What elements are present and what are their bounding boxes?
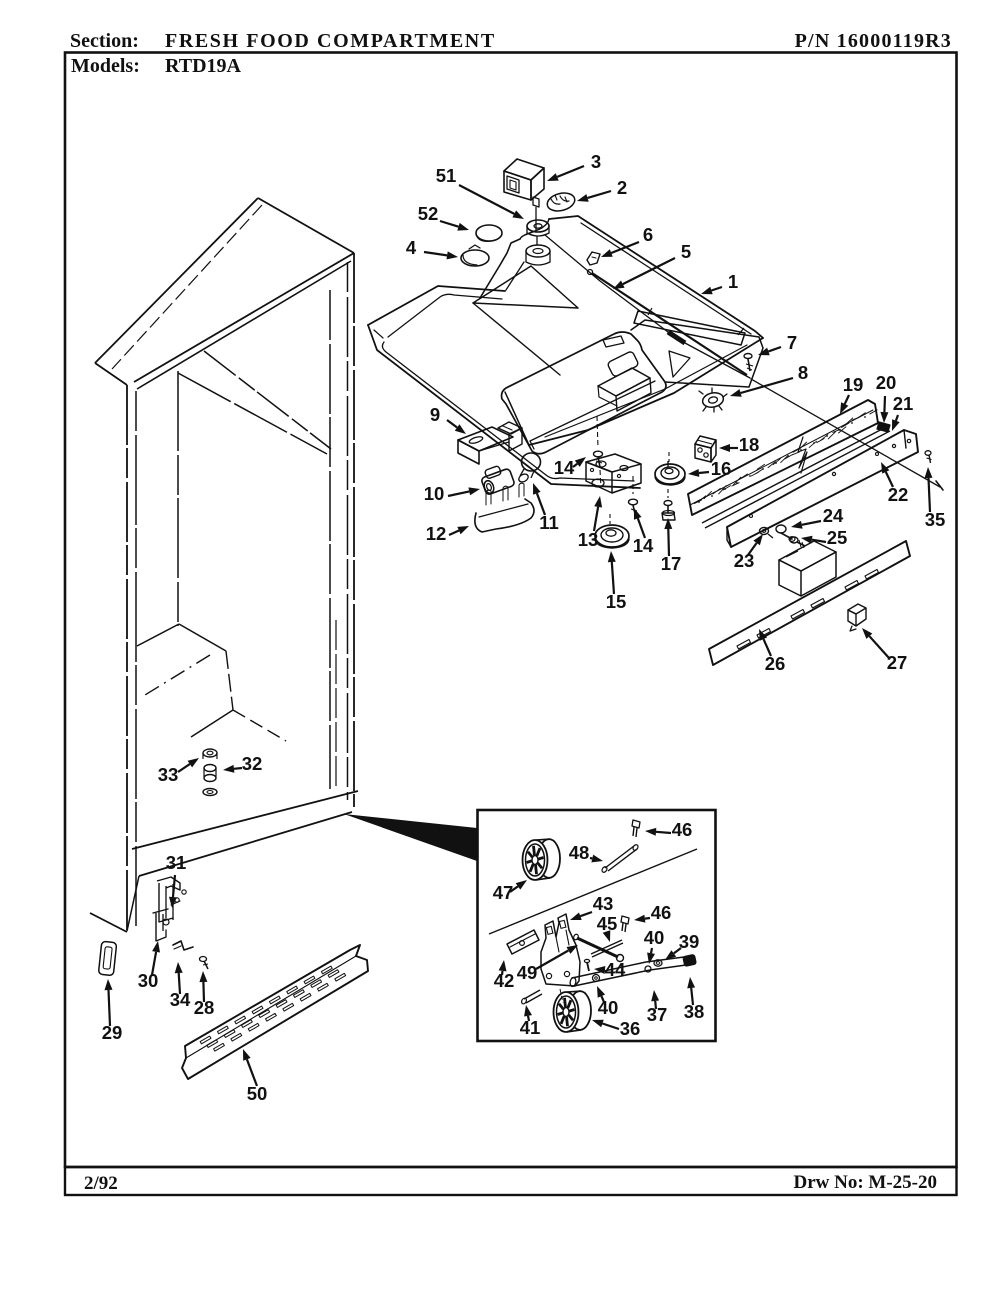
- svg-text:25: 25: [827, 527, 848, 548]
- svg-text:4: 4: [406, 237, 417, 258]
- svg-text:14: 14: [633, 535, 654, 556]
- svg-text:8: 8: [798, 362, 808, 383]
- svg-text:13: 13: [578, 529, 599, 550]
- svg-text:43: 43: [593, 893, 614, 914]
- svg-text:46: 46: [651, 902, 672, 923]
- svg-text:10: 10: [424, 483, 445, 504]
- svg-text:39: 39: [679, 931, 700, 952]
- svg-text:27: 27: [887, 652, 908, 673]
- svg-text:29: 29: [102, 1022, 123, 1043]
- svg-text:5: 5: [681, 241, 691, 262]
- svg-text:52: 52: [418, 203, 439, 224]
- svg-text:31: 31: [166, 852, 187, 873]
- svg-text:37: 37: [647, 1004, 668, 1025]
- svg-text:49: 49: [517, 962, 538, 983]
- svg-text:22: 22: [888, 484, 909, 505]
- svg-text:47: 47: [493, 882, 514, 903]
- svg-text:35: 35: [925, 509, 946, 530]
- svg-text:48: 48: [569, 842, 590, 863]
- svg-text:21: 21: [893, 393, 914, 414]
- svg-text:46: 46: [672, 819, 693, 840]
- svg-text:44: 44: [605, 959, 626, 980]
- svg-text:23: 23: [734, 550, 755, 571]
- svg-text:19: 19: [843, 374, 864, 395]
- svg-text:32: 32: [242, 753, 263, 774]
- svg-text:12: 12: [426, 523, 447, 544]
- svg-text:3: 3: [591, 151, 601, 172]
- svg-text:24: 24: [823, 505, 844, 526]
- svg-text:7: 7: [787, 332, 797, 353]
- svg-text:18: 18: [739, 434, 760, 455]
- svg-text:16: 16: [711, 458, 732, 479]
- svg-text:33: 33: [158, 764, 179, 785]
- svg-text:26: 26: [765, 653, 786, 674]
- svg-text:45: 45: [597, 913, 618, 934]
- svg-text:36: 36: [620, 1018, 641, 1039]
- svg-text:1: 1: [728, 271, 738, 292]
- svg-text:30: 30: [138, 970, 159, 991]
- svg-text:14: 14: [554, 457, 575, 478]
- svg-text:11: 11: [539, 512, 559, 533]
- svg-text:40: 40: [598, 997, 619, 1018]
- svg-text:9: 9: [430, 404, 440, 425]
- svg-text:6: 6: [643, 224, 653, 245]
- svg-text:15: 15: [606, 591, 627, 612]
- svg-text:41: 41: [520, 1017, 541, 1038]
- svg-text:17: 17: [661, 553, 682, 574]
- svg-text:51: 51: [436, 165, 457, 186]
- svg-text:20: 20: [876, 372, 897, 393]
- svg-text:50: 50: [247, 1083, 268, 1104]
- svg-text:2: 2: [617, 177, 627, 198]
- svg-text:42: 42: [494, 970, 515, 991]
- svg-text:40: 40: [644, 927, 665, 948]
